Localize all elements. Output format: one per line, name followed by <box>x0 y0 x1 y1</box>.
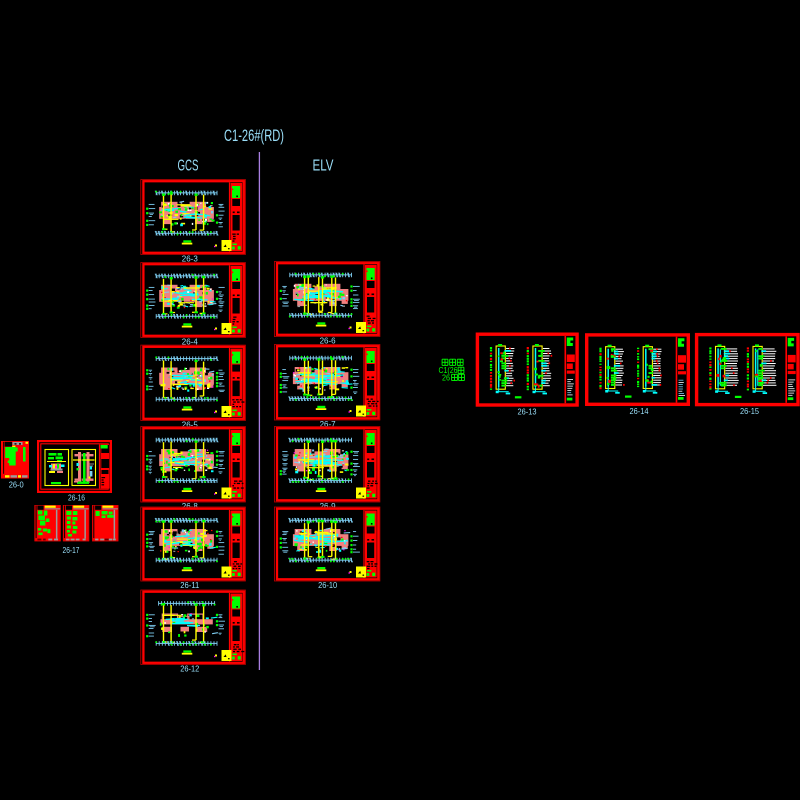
svg-text:26-0: 26-0 <box>9 480 24 490</box>
svg-text:26-3: 26-3 <box>182 254 198 264</box>
svg-text:26-11: 26-11 <box>180 580 199 590</box>
svg-text:26-6: 26-6 <box>320 336 336 346</box>
svg-text:26-12: 26-12 <box>180 664 199 674</box>
svg-text:ELV: ELV <box>313 158 334 175</box>
svg-text:26-17: 26-17 <box>63 545 80 555</box>
svg-text:GCS: GCS <box>178 158 199 175</box>
svg-text:26-10: 26-10 <box>318 580 337 590</box>
svg-text:26-15: 26-15 <box>740 406 759 416</box>
svg-text:26-13: 26-13 <box>518 407 537 417</box>
svg-text:C1-26#(RD): C1-26#(RD) <box>224 127 284 145</box>
svg-text:26: 26 <box>442 373 450 382</box>
svg-text:26-14: 26-14 <box>630 406 649 416</box>
svg-text:26-16: 26-16 <box>68 492 85 502</box>
